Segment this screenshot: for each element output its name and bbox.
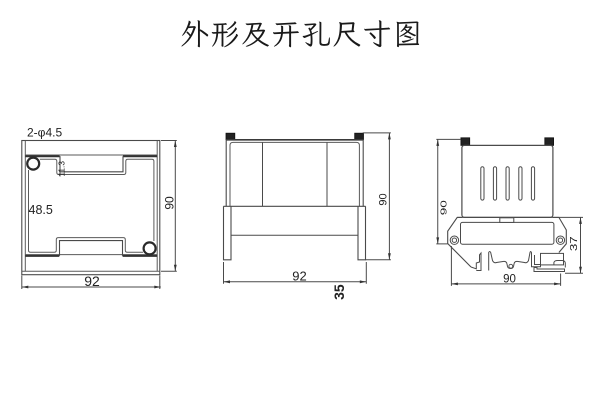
svg-text:90: 90 <box>163 196 177 210</box>
svg-text:11.3: 11.3 <box>57 161 67 177</box>
svg-text:90: 90 <box>503 274 516 286</box>
svg-text:90: 90 <box>440 200 449 215</box>
svg-text:92: 92 <box>292 268 306 283</box>
svg-text:35: 35 <box>331 284 347 300</box>
svg-text:2-φ4.5: 2-φ4.5 <box>27 126 62 140</box>
svg-text:92: 92 <box>84 273 100 289</box>
svg-text:90: 90 <box>378 193 390 205</box>
svg-text:37: 37 <box>568 236 580 251</box>
svg-text:48.5: 48.5 <box>29 203 53 217</box>
